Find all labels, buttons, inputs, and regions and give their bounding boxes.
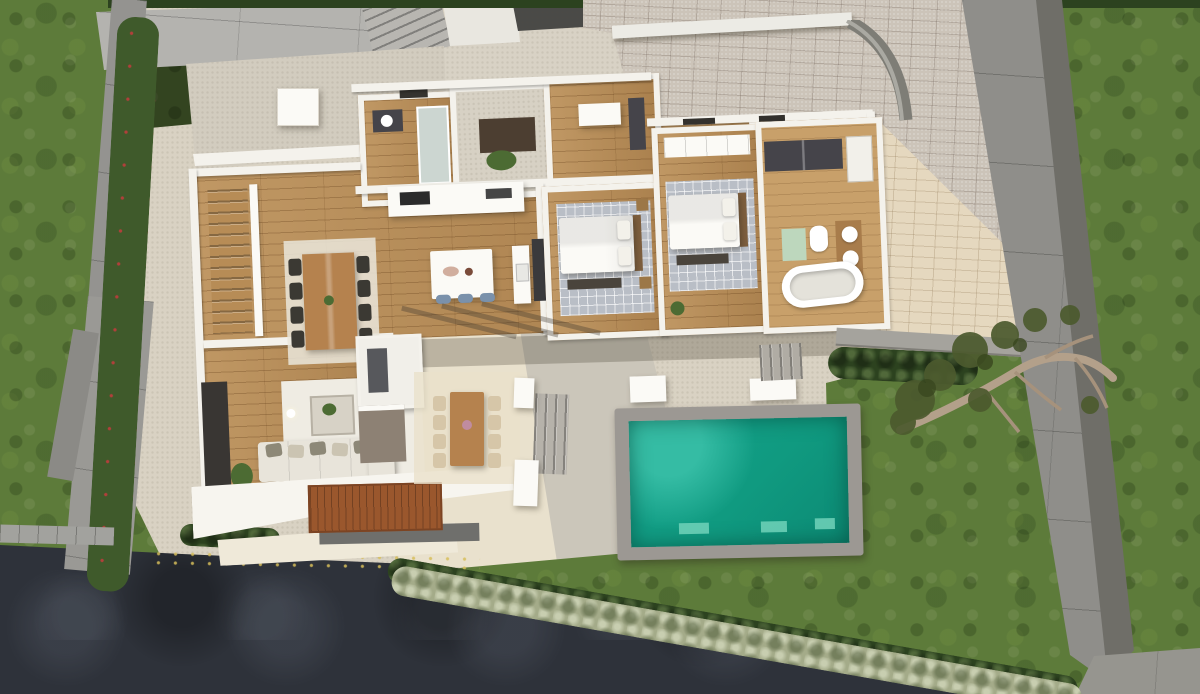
- white-dresser: [578, 103, 621, 127]
- bar-stool: [436, 294, 451, 304]
- bar-stool: [458, 294, 473, 304]
- double-bed: [668, 193, 740, 250]
- underwater-pad: [679, 523, 709, 535]
- white-planter: [513, 460, 539, 507]
- bath-wardrobe-units: [764, 139, 843, 172]
- glass-shower: [416, 105, 451, 184]
- white-planter: [513, 378, 534, 409]
- curb-blocks: [0, 525, 114, 546]
- underwater-pad: [815, 518, 835, 529]
- dark-wardrobe: [628, 98, 646, 151]
- bedroom-plant: [670, 301, 685, 316]
- olive-tree: [885, 280, 1120, 465]
- white-bench: [630, 375, 667, 402]
- outdoor-chair: [433, 453, 446, 468]
- dining-chair: [288, 258, 302, 276]
- cooktop: [400, 191, 430, 205]
- outdoor-chair: [433, 434, 446, 449]
- foyer-planting: [486, 150, 517, 171]
- white-bench: [750, 377, 797, 401]
- sofa-pillow: [331, 443, 348, 457]
- dining-chair: [358, 304, 372, 322]
- dining-chair: [356, 256, 370, 274]
- pillow: [618, 246, 632, 266]
- bathroom: [755, 117, 890, 334]
- stair-flight: [207, 189, 253, 334]
- flower-centerpiece: [462, 420, 472, 430]
- outdoor-cabinet: [358, 404, 406, 463]
- dining-chair: [357, 280, 371, 298]
- sofa-pillow: [265, 443, 283, 458]
- pool-water: [629, 417, 850, 548]
- freestanding-bathtub: [780, 259, 866, 310]
- sofa-pillow: [309, 441, 326, 456]
- double-bed: [559, 215, 635, 274]
- outdoor-chair: [433, 415, 446, 430]
- doormat: [479, 117, 536, 153]
- green-bath-mat: [781, 228, 806, 261]
- kitchen-sink: [516, 263, 530, 282]
- nightstand: [636, 198, 648, 210]
- underwater-pad: [761, 521, 787, 533]
- dining-chair: [290, 306, 304, 324]
- coffee-table: [310, 394, 356, 436]
- white-wardrobe: [664, 134, 751, 157]
- outdoor-chair: [488, 396, 501, 411]
- pool-east-steps: [759, 343, 803, 381]
- terracotta-deck: [308, 482, 443, 533]
- outdoor-chair: [488, 453, 501, 468]
- staircase: [203, 184, 273, 338]
- aerial-villa-render: [0, 0, 1200, 694]
- dining-chair: [289, 282, 303, 300]
- pool: [614, 403, 863, 560]
- nightstand: [639, 276, 651, 288]
- bedroom-1: [542, 182, 670, 341]
- bathtub-basin: [788, 267, 857, 302]
- pillow: [722, 198, 736, 217]
- clerestory-window-1: [683, 118, 715, 125]
- bath-shower: [846, 135, 874, 182]
- kitchen-island: [430, 249, 494, 299]
- outdoor-chair: [488, 434, 501, 449]
- pillow: [617, 220, 631, 240]
- kitchen-sink-dark: [486, 188, 512, 199]
- outdoor-chair: [433, 396, 446, 411]
- outdoor-chair: [488, 415, 501, 430]
- foot-bench: [676, 253, 728, 265]
- toilet: [809, 225, 828, 252]
- pillow: [723, 222, 737, 241]
- dining-chair: [291, 330, 305, 348]
- bedroom-2: [651, 124, 773, 336]
- sofa-pillow: [288, 444, 305, 458]
- outdoor-kitchen-shelves: [367, 348, 389, 393]
